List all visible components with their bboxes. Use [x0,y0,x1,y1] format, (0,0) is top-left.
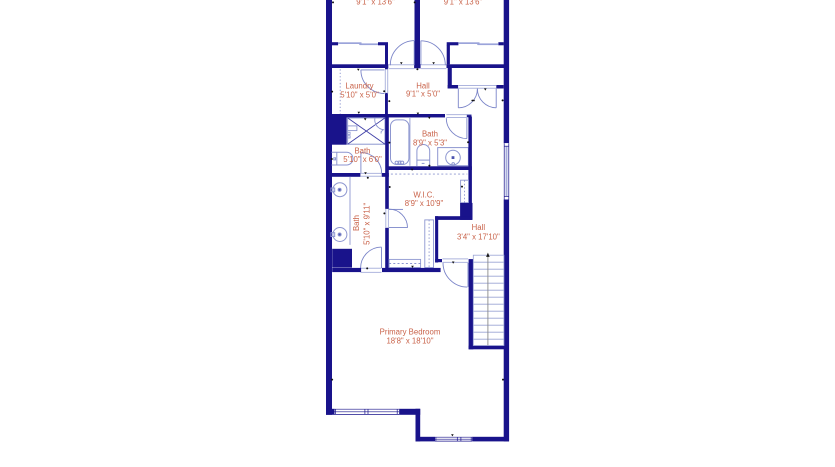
svg-text:9'1" x 13'6": 9'1" x 13'6" [444,0,483,6]
svg-text:8'9" x 5'3": 8'9" x 5'3" [413,138,447,147]
svg-text:Bath: Bath [422,129,438,138]
svg-text:Primary Bedroom: Primary Bedroom [380,327,441,336]
svg-text:Bath: Bath [352,215,361,231]
svg-text:8'9" x 10'9": 8'9" x 10'9" [405,199,444,208]
svg-text:Hall: Hall [472,223,486,232]
svg-text:5'10" x 9'11": 5'10" x 9'11" [363,202,372,244]
svg-text:5'10" x 5'0": 5'10" x 5'0" [340,90,379,99]
svg-text:9'1" x 13'6": 9'1" x 13'6" [356,0,395,6]
svg-text:18'8" x 18'10": 18'8" x 18'10" [386,336,433,345]
svg-text:9'1" x 5'0": 9'1" x 5'0" [406,90,440,99]
svg-text:Laundry: Laundry [345,81,373,90]
svg-text:3'4" x 17'10": 3'4" x 17'10" [457,233,500,242]
svg-text:5'10" x 6'0": 5'10" x 6'0" [343,155,382,164]
